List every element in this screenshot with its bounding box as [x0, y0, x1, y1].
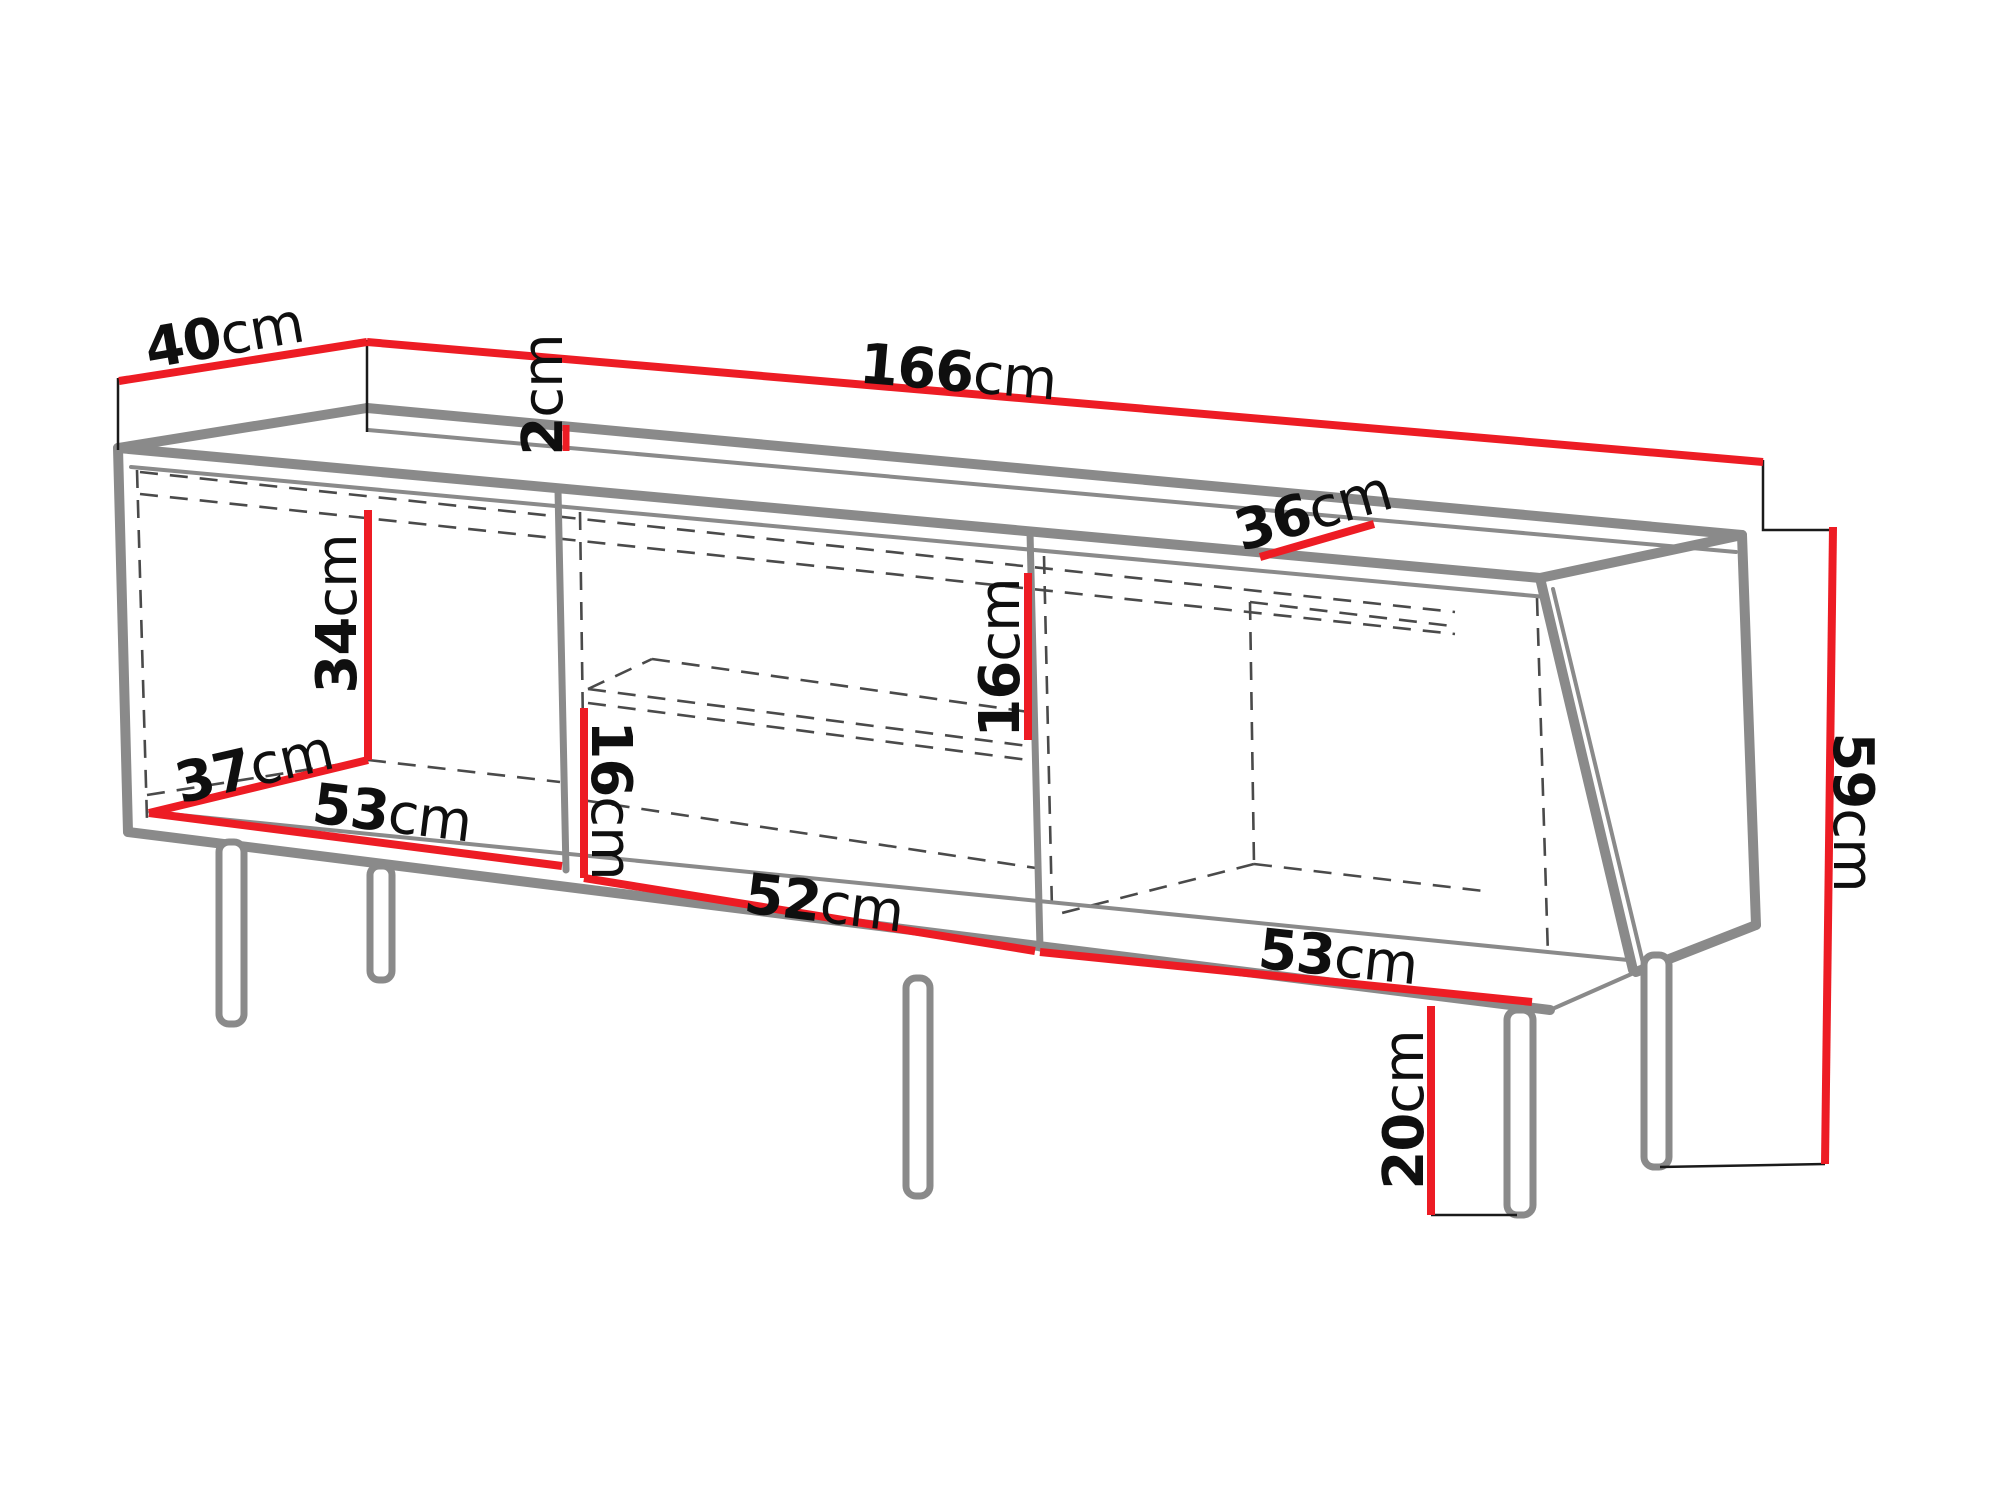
dimension-labels: 40cm2cm166cm36cm34cm37cm53cm16cm52cm16cm… [140, 290, 1886, 1189]
right-compartment-back-left-vertical [1250, 602, 1254, 864]
dim-label-middle-width: 52cm [741, 861, 907, 945]
dim-label-middle-upper-height: 16cm [968, 578, 1033, 737]
furniture-dimension-diagram: 40cm2cm166cm36cm34cm37cm53cm16cm52cm16cm… [0, 0, 2000, 1500]
leg-front-right [1507, 1010, 1533, 1215]
right-panel-outer-edge [1742, 535, 1756, 925]
leg-front-middle [906, 978, 930, 1196]
cabinet-edges [118, 408, 1756, 1010]
leg-back-left [370, 866, 392, 980]
right-panel-front-inner [1553, 589, 1643, 963]
middle-compartment-right-hidden-vertical [1044, 556, 1052, 910]
dim-label-middle-lower-height: 16cm [579, 720, 644, 879]
dim-label-total-width: 166cm [857, 331, 1059, 413]
right-panel-front-edge [1540, 578, 1633, 970]
diagram-canvas: 40cm2cm166cm36cm34cm37cm53cm16cm52cm16cm… [0, 0, 2000, 1500]
ext-166-right [1763, 460, 1830, 530]
left-compartment-bottom-back [368, 760, 560, 782]
dim-label-top-depth: 40cm [140, 290, 308, 382]
dim-label-top-thickness: 2cm [511, 334, 576, 455]
top-right-edge [1540, 535, 1742, 578]
ext-59-bottom [1660, 1164, 1825, 1167]
dim-label-left-compartment-height: 34cm [305, 534, 370, 693]
leg-front-left [219, 842, 244, 1024]
right-compartment-bottom-diagonal-right [1254, 864, 1492, 892]
dim-label-top-inner-depth: 36cm [1227, 458, 1398, 564]
legs [219, 842, 1669, 1215]
leg-back-right [1644, 955, 1669, 1167]
dim-label-left-compartment-width: 53cm [309, 771, 475, 855]
shelf-left-side-dashed [588, 659, 652, 689]
dim-label-right-compartment-width: 53cm [1255, 916, 1420, 997]
left-panel-inner-dashed [137, 470, 147, 820]
divider-left [558, 490, 566, 870]
dim-line-166cm [367, 342, 1763, 462]
dim-label-body-height: 59cm [1821, 732, 1886, 891]
top-left-edge [118, 408, 367, 448]
bottom-right-connector [1550, 972, 1636, 1010]
right-panel-inner-dashed [1537, 598, 1548, 956]
left-front-vertical [118, 448, 128, 832]
middle-compartment-bottom-back [582, 800, 1036, 868]
dim-label-leg-height: 20cm [1372, 1030, 1437, 1189]
